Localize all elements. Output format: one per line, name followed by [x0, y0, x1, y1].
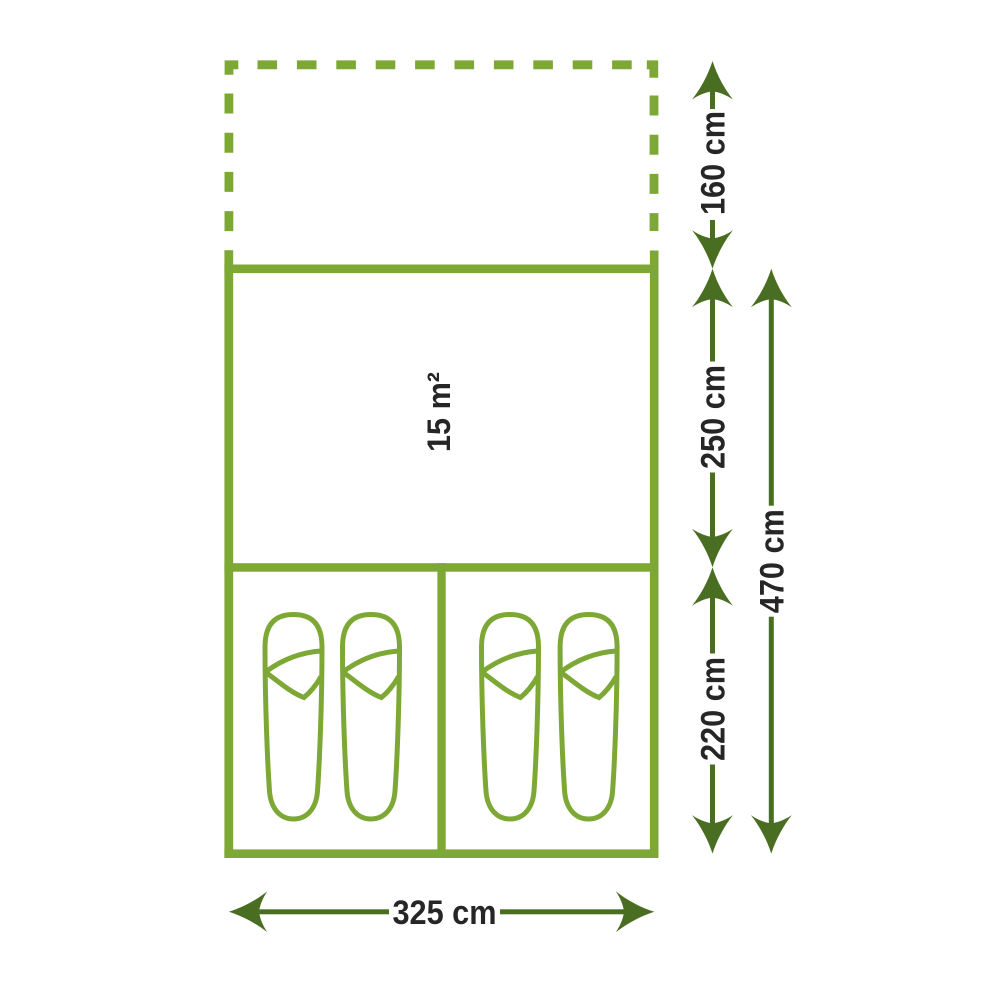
svg-text:15 m²: 15 m²	[421, 372, 457, 452]
svg-text:220 cm: 220 cm	[695, 657, 733, 761]
svg-text:470 cm: 470 cm	[754, 509, 792, 613]
svg-text:160 cm: 160 cm	[695, 111, 733, 215]
svg-text:250 cm: 250 cm	[695, 365, 733, 469]
svg-text:325 cm: 325 cm	[393, 894, 497, 932]
